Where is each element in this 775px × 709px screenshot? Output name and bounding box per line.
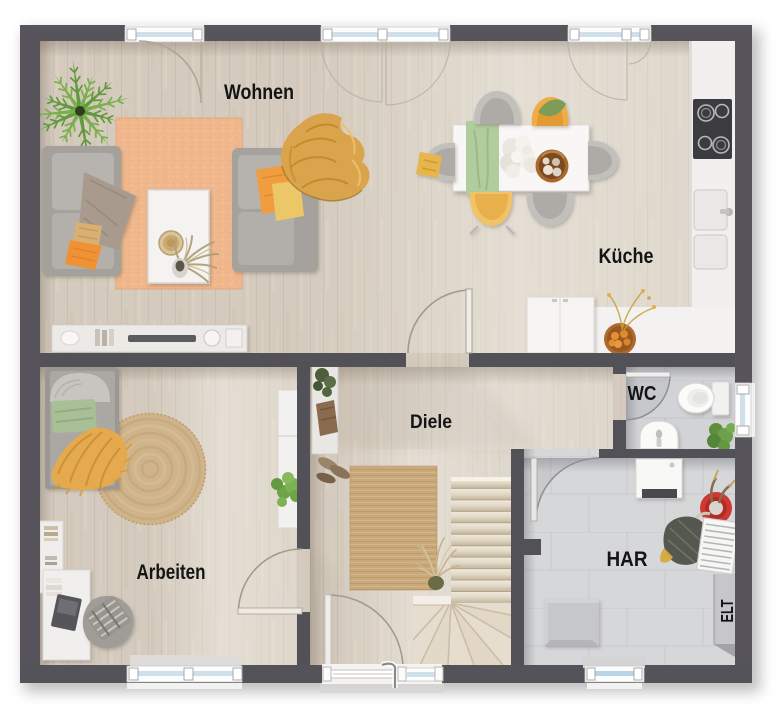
svg-text:Wohnen: Wohnen xyxy=(224,80,294,104)
svg-text:Diele: Diele xyxy=(410,411,452,433)
svg-text:Arbeiten: Arbeiten xyxy=(137,561,206,584)
svg-text:Küche: Küche xyxy=(599,244,654,268)
svg-text:HAR: HAR xyxy=(607,548,648,571)
svg-text:WC: WC xyxy=(628,383,657,405)
svg-text:ELT: ELT xyxy=(717,599,737,622)
